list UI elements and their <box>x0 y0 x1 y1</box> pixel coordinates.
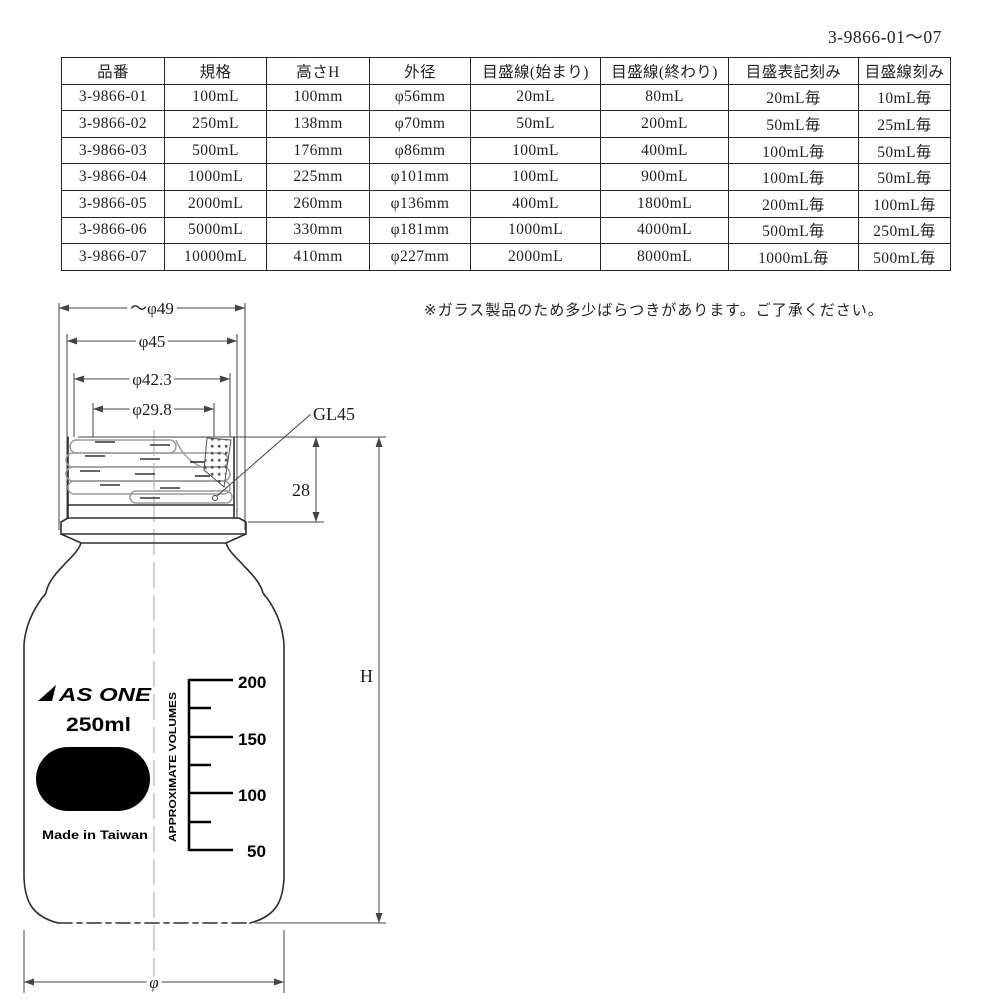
table-row: 3-9866-07 10000mL 410mm φ227mm 2000mL 80… <box>62 244 951 271</box>
table-cell: φ86mm <box>370 137 471 164</box>
table-cell: 1000mL <box>165 164 267 191</box>
spec-table: 品番 規格 高さH 外径 目盛線(始まり) 目盛線(終わり) 目盛表記刻み 目盛… <box>61 57 951 271</box>
table-cell: 20mL毎 <box>729 84 859 111</box>
table-cell: 225mm <box>267 164 370 191</box>
table-cell: 410mm <box>267 244 370 271</box>
table-row: 3-9866-01 100mL 100mm φ56mm 20mL 80mL 20… <box>62 84 951 111</box>
table-cell: 100mL毎 <box>729 137 859 164</box>
table-cell: 500mL <box>165 137 267 164</box>
table-cell: 50mL毎 <box>859 137 951 164</box>
table-cell: 260mm <box>267 190 370 217</box>
brand-label: AS ONE <box>58 685 153 705</box>
header-cell: 目盛表記刻み <box>729 58 859 85</box>
table-cell: 1000mL <box>471 217 601 244</box>
table-cell: 250mL毎 <box>859 217 951 244</box>
header-cell: 品番 <box>62 58 165 85</box>
table-cell: 3-9866-06 <box>62 217 165 244</box>
dimension-neck-height: 28 <box>78 437 386 522</box>
table-cell: 80mL <box>601 84 729 111</box>
table-header-row: 品番 規格 高さH 外径 目盛線(始まり) 目盛線(終わり) 目盛表記刻み 目盛… <box>62 58 951 85</box>
table-cell: 10000mL <box>165 244 267 271</box>
table-cell: 900mL <box>601 164 729 191</box>
scale-title-label: APPROXIMATE VOLUMES <box>168 692 179 842</box>
table-cell: 3-9866-03 <box>62 137 165 164</box>
table-cell: 100mL毎 <box>729 164 859 191</box>
neck-height-label: 28 <box>292 480 310 500</box>
note-text: ※ガラス製品のため多少ばらつきがあります。ご了承ください。 <box>424 299 884 320</box>
table-cell: 3-9866-05 <box>62 190 165 217</box>
table-cell: 50mL毎 <box>859 164 951 191</box>
mouth-29-8-label: φ29.8 <box>132 400 172 419</box>
table-cell: 200mL <box>601 111 729 138</box>
table-cell: 250mL <box>165 111 267 138</box>
table-cell: 500mL毎 <box>859 244 951 271</box>
table-cell: φ181mm <box>370 217 471 244</box>
table-cell: 50mL <box>471 111 601 138</box>
table-row: 3-9866-03 500mL 176mm φ86mm 100mL 400mL … <box>62 137 951 164</box>
table-cell: 100mL毎 <box>859 190 951 217</box>
table-cell: 400mL <box>471 190 601 217</box>
total-height-label: H <box>360 666 373 686</box>
table-cell: 100mL <box>471 164 601 191</box>
scale-tick-label: 100 <box>238 786 266 805</box>
table-cell: 100mL <box>471 137 601 164</box>
table-cell: φ56mm <box>370 84 471 111</box>
table-cell: 138mm <box>267 111 370 138</box>
outer-45-label: φ45 <box>139 332 166 351</box>
table-cell: φ101mm <box>370 164 471 191</box>
table-cell: 330mm <box>267 217 370 244</box>
table-cell: 400mL <box>601 137 729 164</box>
table-cell: 4000mL <box>601 217 729 244</box>
graduation-scale <box>189 679 233 851</box>
bottle-neck-threads <box>66 437 234 518</box>
label-blackout-area <box>36 747 150 811</box>
table-cell: 176mm <box>267 137 370 164</box>
table-cell: 1000mL毎 <box>729 244 859 271</box>
table-cell: 500mL毎 <box>729 217 859 244</box>
table-row: 3-9866-04 1000mL 225mm φ101mm 100mL 900m… <box>62 164 951 191</box>
table-cell: 100mm <box>267 84 370 111</box>
header-cell: 高さH <box>267 58 370 85</box>
bottle-printed-label: AS ONE 250ml Made in Taiwan <box>36 685 152 842</box>
capacity-label: 250ml <box>66 715 131 736</box>
header-cell: 目盛線(始まり) <box>471 58 601 85</box>
header-cell: 目盛線(終わり) <box>601 58 729 85</box>
dimension-total-height: H <box>255 437 386 923</box>
cap-diameter-label: ～φ49 <box>130 299 174 318</box>
header-cell: 規格 <box>165 58 267 85</box>
table-cell: 25mL毎 <box>859 111 951 138</box>
scale-tick-label: 50 <box>247 842 266 861</box>
table-cell: 5000mL <box>165 217 267 244</box>
datasheet-page: 3-9866-01～07 品番 規格 高さH 外径 目盛線(始まり) 目盛線(終… <box>0 0 1000 1000</box>
table-row: 3-9866-06 5000mL 330mm φ181mm 1000mL 400… <box>62 217 951 244</box>
table-cell: 2000mL <box>165 190 267 217</box>
header-cell: 目盛線刻み <box>859 58 951 85</box>
table-row: 3-9866-02 250mL 138mm φ70mm 50mL 200mL 5… <box>62 111 951 138</box>
header-cell: 外径 <box>370 58 471 85</box>
table-cell: 200mL毎 <box>729 190 859 217</box>
table-cell: φ70mm <box>370 111 471 138</box>
scale-tick-label: 200 <box>238 673 266 692</box>
scale-tick-label: 150 <box>238 730 266 749</box>
table-cell: 3-9866-02 <box>62 111 165 138</box>
table-cell: 3-9866-01 <box>62 84 165 111</box>
table-cell: 50mL毎 <box>729 111 859 138</box>
asone-logo-mark-icon <box>38 685 56 701</box>
bottle-technical-drawing: ～φ49 φ45 φ42.3 φ29.8 <box>0 290 460 1000</box>
page-code: 3-9866-01～07 <box>828 24 942 49</box>
table-row: 3-9866-05 2000mL 260mm φ136mm 400mL 1800… <box>62 190 951 217</box>
table-cell: 1800mL <box>601 190 729 217</box>
table-cell: φ227mm <box>370 244 471 271</box>
thread-42-3-label: φ42.3 <box>132 370 172 389</box>
table-cell: 2000mL <box>471 244 601 271</box>
table-cell: 10mL毎 <box>859 84 951 111</box>
table-cell: 100mL <box>165 84 267 111</box>
table-cell: 8000mL <box>601 244 729 271</box>
table-cell: φ136mm <box>370 190 471 217</box>
body-diameter-label: φ <box>149 973 158 992</box>
origin-label: Made in Taiwan <box>42 830 148 842</box>
table-cell: 3-9866-04 <box>62 164 165 191</box>
table-cell: 20mL <box>471 84 601 111</box>
thread-type-label: GL45 <box>313 404 355 424</box>
table-cell: 3-9866-07 <box>62 244 165 271</box>
